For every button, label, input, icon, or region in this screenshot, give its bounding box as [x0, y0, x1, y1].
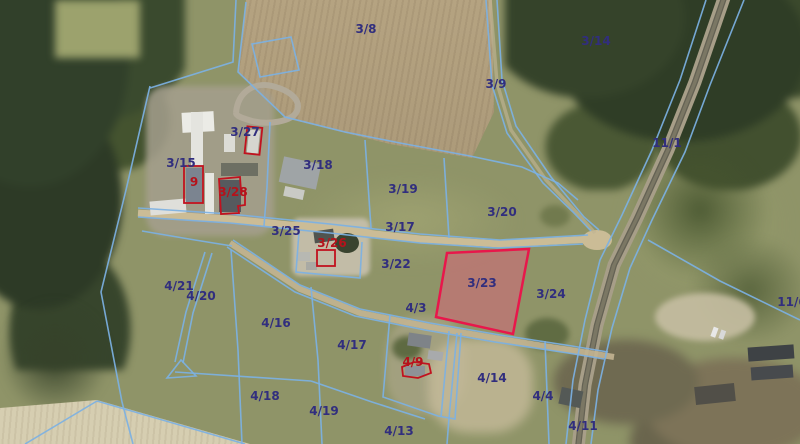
map-canvas[interactable]: 3/83/143/93/2711/13/153/1893/193/283/203…: [0, 0, 800, 444]
parcel-label-4-18: 4/18: [250, 389, 279, 403]
parcel-label-3-8: 3/8: [355, 22, 376, 36]
parcel-label-4-3: 4/3: [405, 301, 426, 315]
parcel-label-4-14: 4/14: [477, 371, 506, 385]
parcel-label-3-17: 3/17: [385, 220, 414, 234]
parcel-label-3-28: 3/28: [218, 185, 247, 199]
parcel-label-4-4: 4/4: [532, 389, 553, 403]
parcel-label-4-19: 4/19: [309, 404, 338, 418]
parcel-label-11-6: 11/6: [777, 295, 800, 309]
parcel-label-3-20: 3/20: [487, 205, 516, 219]
parcel-label-4-20: 4/20: [186, 289, 215, 303]
parcel-label-3-26: 3/26: [317, 236, 346, 250]
parcel-label-4-9: 4/9: [402, 355, 423, 369]
parcel-label-4-17: 4/17: [337, 338, 366, 352]
parcel-label-9: 9: [190, 175, 198, 189]
parcel-label-3-25: 3/25: [271, 224, 300, 238]
parcel-label-3-22: 3/22: [381, 257, 410, 271]
parcel-label-4-13: 4/13: [384, 424, 413, 438]
parcel-labels-layer: 3/83/143/93/2711/13/153/1893/193/283/203…: [0, 0, 800, 444]
parcel-label-3-9: 3/9: [485, 77, 506, 91]
parcel-label-3-15: 3/15: [166, 156, 195, 170]
parcel-label-3-27: 3/27: [230, 125, 259, 139]
parcel-label-3-18: 3/18: [303, 158, 332, 172]
parcel-label-4-16: 4/16: [261, 316, 290, 330]
parcel-label-3-19: 3/19: [388, 182, 417, 196]
parcel-label-11-1: 11/1: [652, 136, 681, 150]
parcel-label-3-23: 3/23: [467, 276, 496, 290]
parcel-label-3-24: 3/24: [536, 287, 565, 301]
parcel-label-4-11: 4/11: [568, 419, 597, 433]
parcel-label-3-14: 3/14: [581, 34, 610, 48]
